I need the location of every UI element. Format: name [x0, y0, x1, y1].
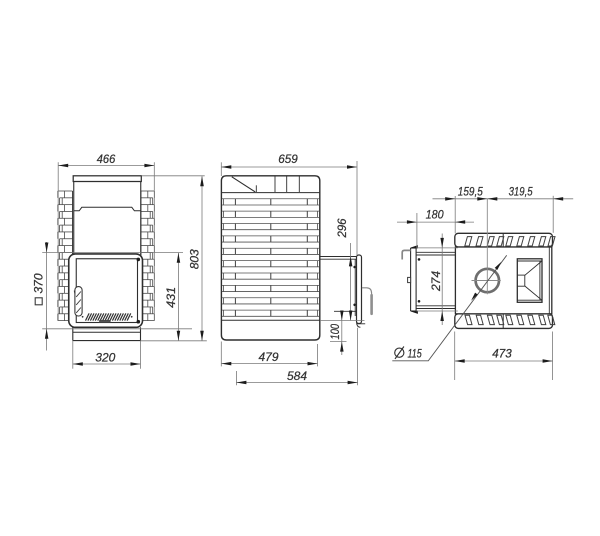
svg-text:370: 370	[32, 273, 46, 293]
svg-text:296: 296	[335, 218, 349, 238]
svg-text:274: 274	[429, 271, 443, 292]
svg-text:466: 466	[97, 152, 116, 166]
svg-text:320: 320	[95, 350, 115, 364]
svg-text:431: 431	[164, 287, 178, 308]
svg-text:803: 803	[187, 249, 201, 269]
svg-text:319,5: 319,5	[509, 185, 533, 199]
svg-text:115: 115	[408, 347, 423, 361]
svg-text:479: 479	[259, 350, 279, 364]
svg-text:584: 584	[287, 369, 307, 383]
svg-text:659: 659	[278, 152, 298, 166]
svg-text:159,5: 159,5	[458, 185, 483, 199]
svg-text:100: 100	[328, 324, 342, 340]
svg-text:473: 473	[492, 347, 512, 361]
svg-text:180: 180	[426, 207, 444, 221]
